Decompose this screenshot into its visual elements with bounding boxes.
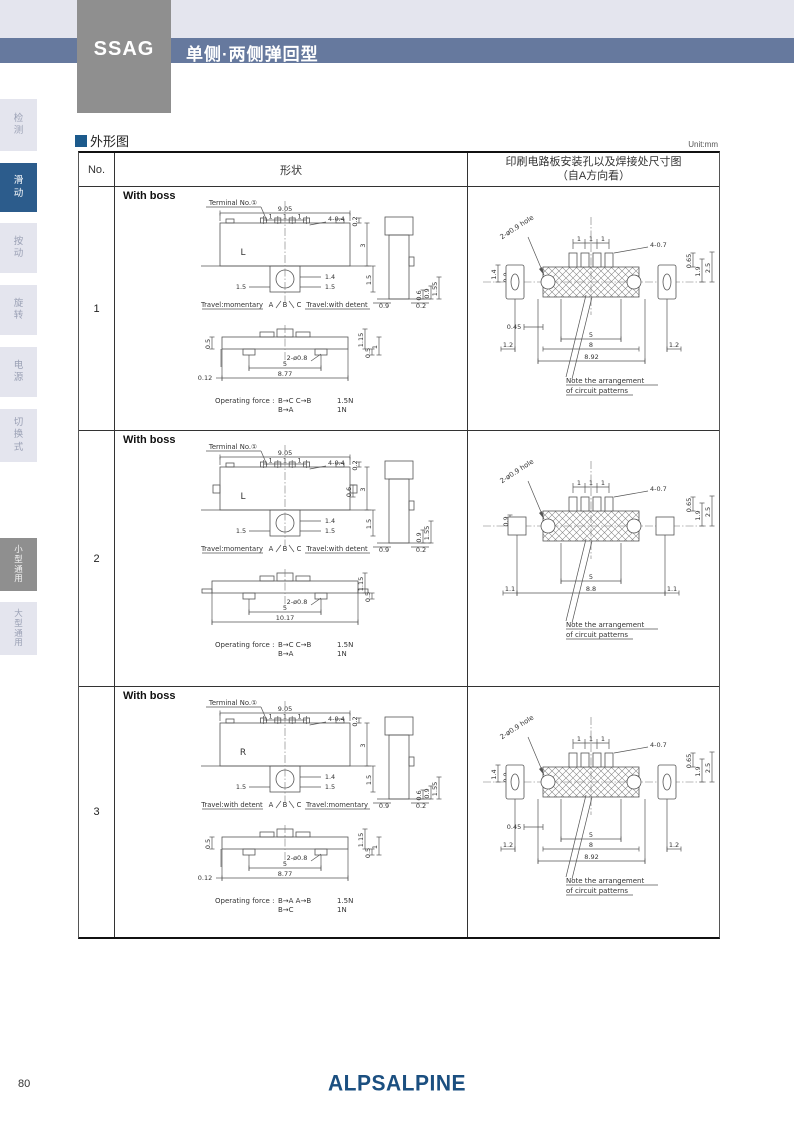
sidebar-item-1[interactable]: 检测 — [0, 99, 37, 151]
svg-text:1.2: 1.2 — [503, 841, 513, 849]
svg-text:A: A — [269, 545, 274, 553]
svg-text:0.9: 0.9 — [423, 288, 431, 298]
svg-text:1: 1 — [577, 235, 581, 243]
sidebar-item-char: 动 — [14, 248, 24, 260]
series-box: SSAG — [77, 0, 171, 113]
svg-text:1: 1 — [269, 213, 273, 221]
series-name: SSAG — [77, 38, 171, 61]
shape-drawing: Terminal No.①9.051114-0.4L0.230.61.51.41… — [115, 431, 467, 686]
sidebar-item-2[interactable]: 滑动 — [0, 163, 37, 212]
svg-text:3: 3 — [359, 743, 367, 747]
svg-text:3: 3 — [359, 243, 367, 247]
svg-text:5: 5 — [283, 860, 287, 868]
sidebar-item-char: 式 — [14, 442, 24, 454]
col-header-shape: 形状 — [115, 153, 468, 186]
catalog-page: 单侧·两侧弹回型 SSAG 检测滑动按动旋转电源切换式小型通用大型通用 外形图 … — [0, 0, 794, 1123]
svg-text:1N: 1N — [337, 906, 347, 914]
sidebar-item-6[interactable]: 切换式 — [0, 409, 37, 462]
svg-text:0.65: 0.65 — [685, 254, 693, 268]
svg-text:2-ø0.9 hole: 2-ø0.9 hole — [499, 213, 536, 241]
svg-text:2-ø0.9 hole: 2-ø0.9 hole — [499, 713, 536, 741]
row-number: 3 — [79, 687, 115, 937]
svg-text:8.92: 8.92 — [584, 353, 598, 361]
svg-text:Travel:momentary: Travel:momentary — [305, 801, 368, 809]
svg-text:2-ø0.9 hole: 2-ø0.9 hole — [499, 457, 536, 485]
svg-text:B: B — [283, 301, 288, 309]
svg-text:Note the arrangement: Note the arrangement — [566, 621, 644, 629]
sidebar-item-3[interactable]: 按动 — [0, 223, 37, 273]
svg-text:R: R — [240, 748, 246, 758]
svg-text:0.12: 0.12 — [198, 874, 212, 882]
sidebar-item-char: 按 — [14, 236, 24, 248]
svg-text:0.9: 0.9 — [415, 532, 423, 542]
svg-text:1.4: 1.4 — [325, 273, 335, 281]
svg-text:0.6: 0.6 — [415, 290, 423, 300]
svg-text:0.2: 0.2 — [351, 460, 359, 470]
col-header-no: No. — [79, 153, 115, 186]
svg-text:1.5: 1.5 — [236, 527, 246, 535]
svg-text:1: 1 — [297, 213, 301, 221]
svg-text:Travel:momentary: Travel:momentary — [200, 301, 263, 309]
svg-text:B→C C→B: B→C C→B — [278, 397, 312, 405]
svg-text:1.4: 1.4 — [490, 769, 498, 779]
svg-text:A: A — [269, 801, 274, 809]
svg-text:of circuit patterns: of circuit patterns — [566, 387, 628, 395]
pcb-drawing: 1114-0.70.651.92.51.40.92-ø0.9 hole0.455… — [468, 187, 720, 430]
page-subtitle: 单侧·两侧弹回型 — [186, 40, 319, 65]
svg-text:Operating force :: Operating force : — [215, 397, 274, 405]
sidebar-item-char: 切 — [14, 417, 24, 429]
svg-text:1: 1 — [269, 713, 273, 721]
svg-text:1.5: 1.5 — [365, 519, 373, 529]
sidebar-item-4[interactable]: 旋转 — [0, 285, 37, 335]
shape-drawing: Terminal No.①9.051114-0.4R0.231.51.41.51… — [115, 687, 467, 937]
sidebar-item-char: 用 — [14, 574, 23, 584]
svg-text:0.5: 0.5 — [364, 592, 372, 602]
svg-text:1.4: 1.4 — [490, 269, 498, 279]
svg-text:1.5: 1.5 — [325, 527, 335, 535]
svg-text:0.45: 0.45 — [507, 323, 521, 331]
table-row: 1With bossTerminal No.①9.051114-0.4L0.23… — [79, 187, 719, 430]
svg-text:1.4: 1.4 — [325, 773, 335, 781]
unit-label: Unit:mm — [78, 140, 718, 149]
svg-text:1.15: 1.15 — [357, 577, 365, 591]
svg-text:0.9: 0.9 — [423, 788, 431, 798]
shape-cell: With bossTerminal No.①9.051114-0.4L0.231… — [115, 187, 468, 430]
svg-text:C: C — [297, 301, 302, 309]
sidebar-item-char: 滑 — [14, 175, 24, 187]
svg-text:8.8: 8.8 — [586, 585, 596, 593]
svg-text:1N: 1N — [337, 406, 347, 414]
svg-text:1.15: 1.15 — [357, 833, 365, 847]
svg-text:5: 5 — [283, 604, 287, 612]
svg-text:0.5: 0.5 — [204, 839, 212, 849]
sidebar-item-char: 旋 — [14, 298, 24, 310]
svg-text:B: B — [283, 801, 288, 809]
svg-text:1.5: 1.5 — [365, 775, 373, 785]
svg-text:1.5: 1.5 — [236, 783, 246, 791]
svg-text:1: 1 — [601, 735, 605, 743]
svg-text:0.5: 0.5 — [204, 339, 212, 349]
svg-text:5: 5 — [589, 331, 593, 339]
svg-text:1: 1 — [371, 345, 379, 349]
svg-text:1: 1 — [589, 479, 593, 487]
svg-text:B→C C→B: B→C C→B — [278, 641, 312, 649]
svg-text:Travel:with detent: Travel:with detent — [305, 545, 368, 553]
sidebar-item-char: 源 — [14, 372, 24, 384]
svg-text:0.12: 0.12 — [198, 374, 212, 382]
svg-text:Travel:with detent: Travel:with detent — [200, 801, 263, 809]
svg-text:Terminal No.①: Terminal No.① — [208, 699, 257, 707]
svg-text:2-ø0.8: 2-ø0.8 — [287, 354, 308, 362]
svg-text:5: 5 — [283, 360, 287, 368]
row-number: 1 — [79, 187, 115, 430]
svg-text:1.9: 1.9 — [694, 266, 702, 276]
svg-text:Note the arrangement: Note the arrangement — [566, 377, 644, 385]
svg-text:1: 1 — [371, 845, 379, 849]
brand-logo: ALPSALPINE — [0, 1071, 794, 1096]
svg-text:1.9: 1.9 — [694, 766, 702, 776]
sidebar-item-char: 电 — [14, 360, 24, 372]
shape-cell: With bossTerminal No.①9.051114-0.4R0.231… — [115, 687, 468, 937]
svg-text:B→A: B→A — [278, 650, 294, 658]
col-header-pcb-line2: （自A方向看） — [557, 170, 630, 184]
pcb-cell: 1114-0.70.651.92.50.92-ø0.9 hole51.18.81… — [468, 431, 719, 686]
svg-text:1: 1 — [269, 457, 273, 465]
sidebar-item-char: 测 — [14, 125, 24, 137]
svg-text:1.15: 1.15 — [357, 333, 365, 347]
spec-table: No. 形状 印刷电路板安装孔以及焊接处尺寸图 （自A方向看） 1With bo… — [78, 151, 720, 939]
sidebar-item-char: 换 — [14, 429, 24, 441]
pcb-drawing: 1114-0.70.651.92.50.92-ø0.9 hole51.18.81… — [468, 431, 720, 686]
pcb-drawing: 1114-0.70.651.92.51.40.92-ø0.9 hole0.455… — [468, 687, 720, 937]
svg-text:0.45: 0.45 — [507, 823, 521, 831]
svg-text:L: L — [240, 492, 245, 502]
svg-text:1.4: 1.4 — [325, 517, 335, 525]
svg-text:8.77: 8.77 — [278, 370, 292, 378]
svg-text:1: 1 — [601, 235, 605, 243]
svg-text:C: C — [297, 801, 302, 809]
table-row: 2With bossTerminal No.①9.051114-0.4L0.23… — [79, 430, 719, 686]
svg-text:B→C: B→C — [278, 906, 294, 914]
shape-cell: With bossTerminal No.①9.051114-0.4L0.230… — [115, 431, 468, 686]
svg-text:8: 8 — [589, 341, 593, 349]
svg-text:0.65: 0.65 — [685, 498, 693, 512]
pcb-cell: 1114-0.70.651.92.51.40.92-ø0.9 hole0.455… — [468, 687, 719, 937]
svg-text:0.6: 0.6 — [415, 790, 423, 800]
svg-text:of circuit patterns: of circuit patterns — [566, 631, 628, 639]
svg-text:1: 1 — [297, 457, 301, 465]
table-header-row: No. 形状 印刷电路板安装孔以及焊接处尺寸图 （自A方向看） — [79, 153, 719, 187]
svg-text:8: 8 — [589, 841, 593, 849]
svg-text:Terminal No.①: Terminal No.① — [208, 199, 257, 207]
svg-text:1: 1 — [589, 235, 593, 243]
sidebar-item-char: 检 — [14, 113, 24, 125]
table-row: 3With bossTerminal No.①9.051114-0.4R0.23… — [79, 686, 719, 937]
svg-text:1.55: 1.55 — [431, 282, 439, 296]
svg-text:B: B — [283, 545, 288, 553]
svg-text:1.5: 1.5 — [325, 283, 335, 291]
svg-text:1.9: 1.9 — [694, 510, 702, 520]
svg-text:5: 5 — [589, 573, 593, 581]
svg-text:C: C — [297, 545, 302, 553]
svg-text:1: 1 — [577, 479, 581, 487]
svg-text:2-ø0.8: 2-ø0.8 — [287, 854, 308, 862]
svg-text:1.55: 1.55 — [423, 526, 431, 540]
svg-text:1.5: 1.5 — [236, 283, 246, 291]
svg-text:1: 1 — [297, 713, 301, 721]
sidebar-item-7[interactable]: 小型通用 — [0, 538, 37, 591]
svg-text:1: 1 — [601, 479, 605, 487]
col-header-pcb-line1: 印刷电路板安装孔以及焊接处尺寸图 — [506, 156, 682, 170]
svg-text:1.1: 1.1 — [505, 585, 515, 593]
svg-text:B→A A→B: B→A A→B — [278, 897, 311, 905]
svg-text:0.5: 0.5 — [364, 848, 372, 858]
svg-text:4-0.7: 4-0.7 — [650, 741, 667, 749]
svg-text:Operating force :: Operating force : — [215, 641, 274, 649]
svg-text:1.5: 1.5 — [325, 783, 335, 791]
shape-drawing: Terminal No.①9.051114-0.4L0.231.51.41.51… — [115, 187, 467, 430]
svg-text:4-0.7: 4-0.7 — [650, 241, 667, 249]
svg-text:8.77: 8.77 — [278, 870, 292, 878]
sidebar-item-5[interactable]: 电源 — [0, 347, 37, 397]
sidebar-item-8[interactable]: 大型通用 — [0, 602, 37, 655]
svg-text:1.5N: 1.5N — [337, 897, 353, 905]
svg-text:1.2: 1.2 — [669, 341, 679, 349]
svg-text:5: 5 — [589, 831, 593, 839]
svg-text:1N: 1N — [337, 650, 347, 658]
svg-text:Travel:with detent: Travel:with detent — [305, 301, 368, 309]
svg-text:1: 1 — [589, 735, 593, 743]
svg-text:0.5: 0.5 — [364, 348, 372, 358]
svg-text:1.5N: 1.5N — [337, 397, 353, 405]
sidebar-item-char: 转 — [14, 310, 24, 322]
svg-text:1.55: 1.55 — [431, 782, 439, 796]
svg-text:1.1: 1.1 — [667, 585, 677, 593]
svg-text:Operating force :: Operating force : — [215, 897, 274, 905]
svg-text:B→A: B→A — [278, 406, 294, 414]
svg-text:0.2: 0.2 — [351, 716, 359, 726]
svg-text:3: 3 — [359, 487, 367, 491]
svg-text:0.65: 0.65 — [685, 754, 693, 768]
svg-text:0.6: 0.6 — [345, 487, 353, 497]
row-number: 2 — [79, 431, 115, 686]
svg-text:Note the arrangement: Note the arrangement — [566, 877, 644, 885]
svg-text:4-0.7: 4-0.7 — [650, 485, 667, 493]
svg-text:Travel:momentary: Travel:momentary — [200, 545, 263, 553]
svg-text:10.17: 10.17 — [276, 614, 295, 622]
svg-text:1.5N: 1.5N — [337, 641, 353, 649]
svg-text:A: A — [269, 301, 274, 309]
svg-text:2.5: 2.5 — [704, 263, 712, 273]
pcb-cell: 1114-0.70.651.92.51.40.92-ø0.9 hole0.455… — [468, 187, 719, 430]
svg-text:1.2: 1.2 — [503, 341, 513, 349]
col-header-pcb: 印刷电路板安装孔以及焊接处尺寸图 （自A方向看） — [468, 153, 719, 186]
svg-text:L: L — [240, 248, 245, 258]
sidebar-item-char: 动 — [14, 188, 24, 200]
svg-text:0.2: 0.2 — [351, 216, 359, 226]
svg-text:2.5: 2.5 — [704, 507, 712, 517]
sidebar-item-char: 用 — [14, 638, 23, 648]
svg-text:1: 1 — [577, 735, 581, 743]
svg-text:2-ø0.8: 2-ø0.8 — [287, 598, 308, 606]
svg-text:2.5: 2.5 — [704, 763, 712, 773]
svg-text:1.2: 1.2 — [669, 841, 679, 849]
svg-text:8.92: 8.92 — [584, 853, 598, 861]
svg-text:1.5: 1.5 — [365, 275, 373, 285]
svg-text:of circuit patterns: of circuit patterns — [566, 887, 628, 895]
svg-text:Terminal No.①: Terminal No.① — [208, 443, 257, 451]
